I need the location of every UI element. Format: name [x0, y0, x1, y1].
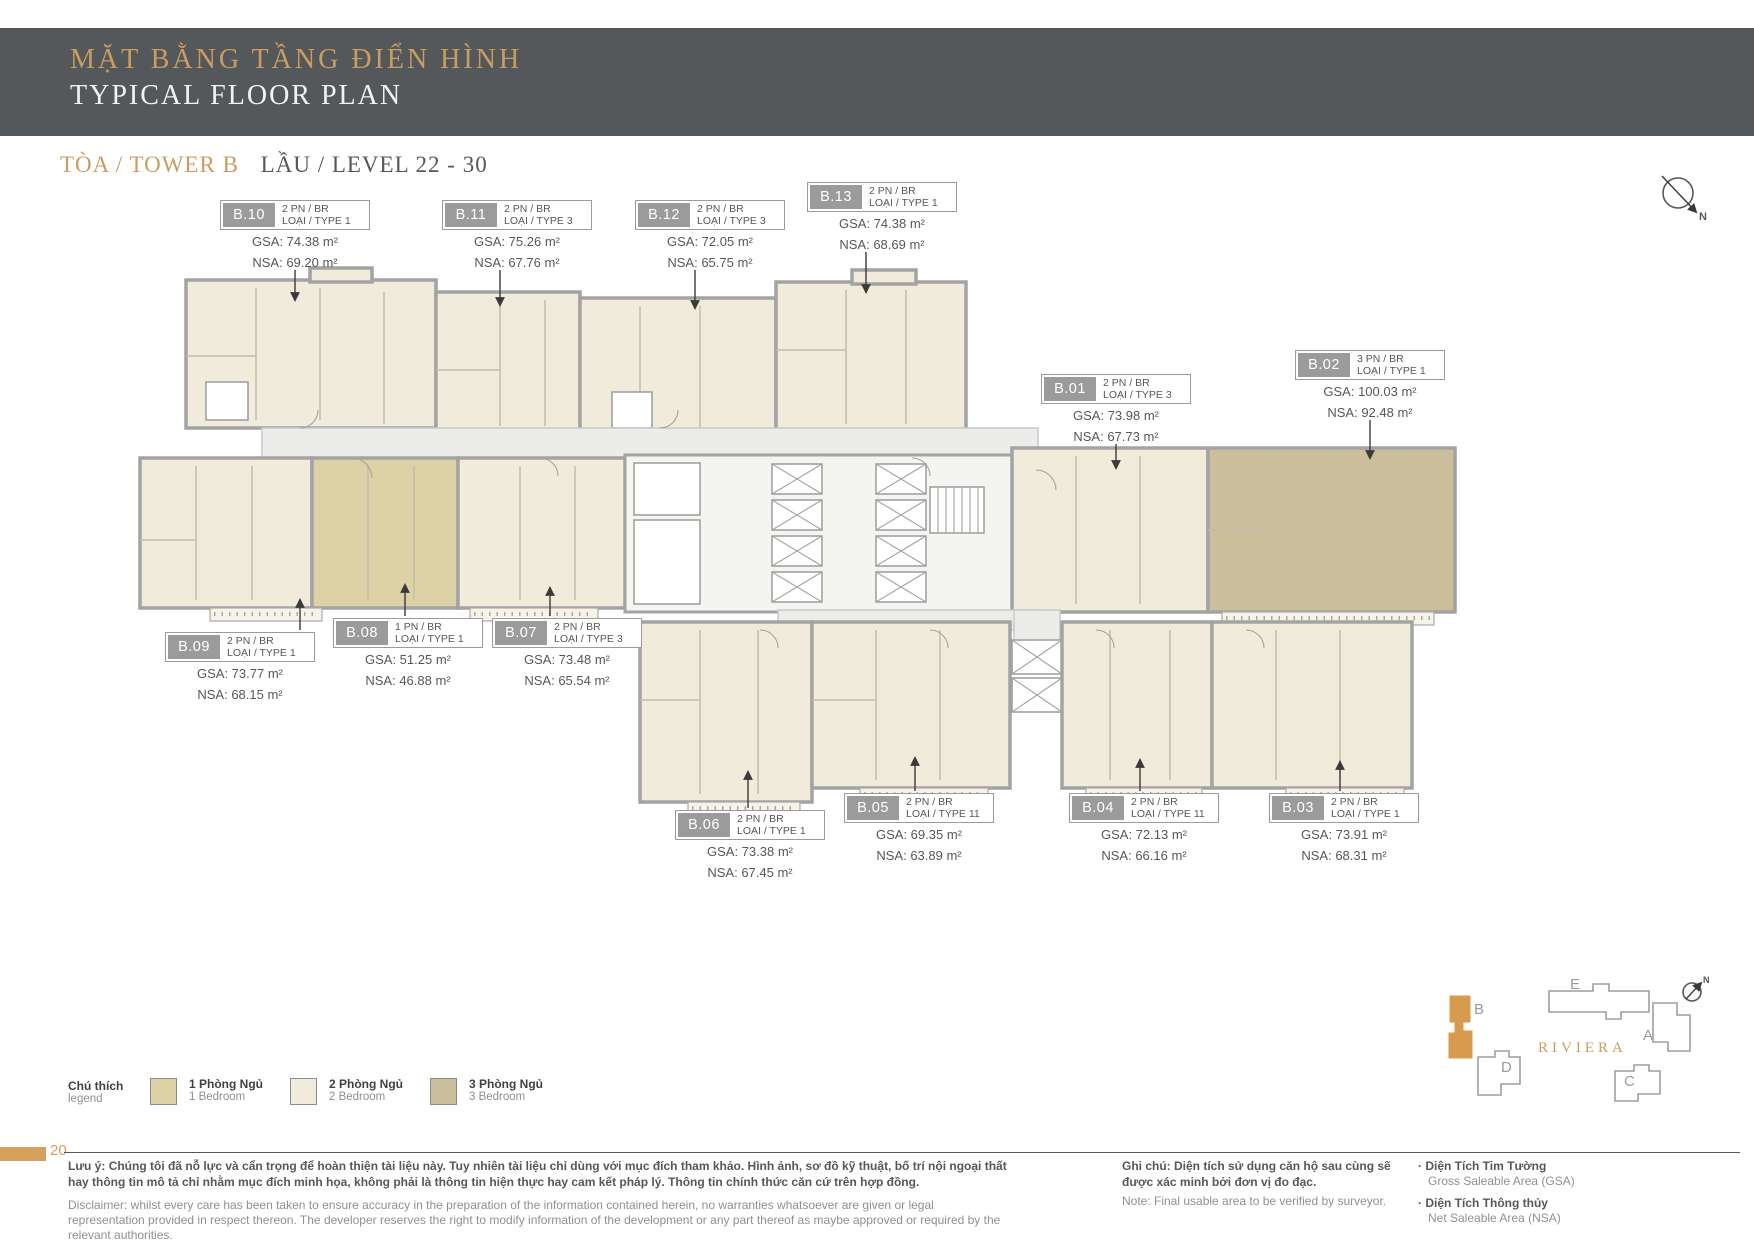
site-map-compass-icon: N	[1683, 975, 1710, 1001]
site-building-b	[1449, 996, 1472, 1058]
unit-gsa: GSA: 72.13 m²	[1064, 825, 1224, 844]
unit-code: B.04	[1072, 796, 1124, 820]
unit-label-b11: B.11 2 PN / BR LOẠI / TYPE 3 GSA: 75.26 …	[437, 200, 597, 272]
nsa-term: · Diện Tích Thông thủy Net Saleable Area…	[1418, 1195, 1738, 1226]
site-building-d	[1478, 1051, 1520, 1095]
unit-label-b12: B.12 2 PN / BR LOẠI / TYPE 3 GSA: 72.05 …	[630, 200, 790, 272]
unit-label-b13: B.13 2 PN / BR LOẠI / TYPE 1 GSA: 74.38 …	[802, 182, 962, 254]
unit-code: B.13	[810, 185, 862, 209]
unit-type: 2 PN / BR LOẠI / TYPE 11	[1124, 796, 1216, 820]
unit-gsa: GSA: 72.05 m²	[630, 232, 790, 251]
unit-nsa: NSA: 68.69 m²	[802, 235, 962, 254]
site-north-label: N	[1703, 975, 1710, 985]
disclaimer-vn: Lưu ý: Chúng tôi đã nỗ lực và cẩn trọng …	[68, 1158, 1008, 1190]
site-building-a	[1653, 1003, 1690, 1051]
note-vn: Ghi chú: Diện tích sử dụng căn hộ sau cù…	[1122, 1158, 1410, 1190]
unit-tag: B.07 2 PN / BR LOẠI / TYPE 3	[492, 618, 642, 648]
legend-item-2br: 2 Phòng Ngủ 2 Bedroom	[290, 1078, 403, 1105]
unit-nsa: NSA: 68.31 m²	[1264, 846, 1424, 865]
gsa-term: · Diện Tích Tim Tường Gross Saleable Are…	[1418, 1158, 1738, 1189]
unit-gsa: GSA: 74.38 m²	[802, 214, 962, 233]
unit-gsa: GSA: 73.98 m²	[1036, 406, 1196, 425]
unit-type: 3 PN / BR LOẠI / TYPE 1	[1350, 353, 1442, 377]
unit-nsa: NSA: 67.45 m²	[670, 863, 830, 882]
unit-nsa: NSA: 68.15 m²	[160, 685, 320, 704]
unit-label-b07: B.07 2 PN / BR LOẠI / TYPE 3 GSA: 73.48 …	[487, 618, 647, 690]
unit-gsa: GSA: 100.03 m²	[1290, 382, 1450, 401]
unit-gsa: GSA: 69.35 m²	[839, 825, 999, 844]
unit-code: B.03	[1272, 796, 1324, 820]
corridor	[1014, 610, 1060, 644]
unit-code: B.09	[168, 635, 220, 659]
legend-swatch-1br	[150, 1078, 177, 1105]
unit-type: 1 PN / BR LOẠI / TYPE 1	[388, 621, 480, 645]
page-tab	[0, 1147, 46, 1161]
unit-tag: B.10 2 PN / BR LOẠI / TYPE 1	[220, 200, 370, 230]
unit-type: 2 PN / BR LOẠI / TYPE 1	[1324, 796, 1416, 820]
disclaimer: Lưu ý: Chúng tôi đã nỗ lực và cẩn trọng …	[68, 1158, 1008, 1241]
unit-code: B.08	[336, 621, 388, 645]
unit-tag: B.11 2 PN / BR LOẠI / TYPE 3	[442, 200, 592, 230]
unit-code: B.12	[638, 203, 690, 227]
project-name: RIVIERA	[1538, 1040, 1627, 1056]
note-en: Note: Final usable area to be verified b…	[1122, 1194, 1410, 1209]
unit-nsa: NSA: 67.73 m²	[1036, 427, 1196, 446]
area-terms: · Diện Tích Tim Tường Gross Saleable Are…	[1418, 1158, 1738, 1232]
unit-label-b06: B.06 2 PN / BR LOẠI / TYPE 1 GSA: 73.38 …	[670, 810, 830, 882]
site-map: B E A D C RIVIERA N	[1449, 975, 1710, 1101]
staircase	[930, 487, 984, 533]
unit-nsa: NSA: 46.88 m²	[328, 671, 488, 690]
unit-gsa: GSA: 74.38 m²	[215, 232, 375, 251]
unit-nsa: NSA: 65.75 m²	[630, 253, 790, 272]
unit-tag: B.12 2 PN / BR LOẠI / TYPE 3	[635, 200, 785, 230]
legend-item-3br: 3 Phòng Ngủ 3 Bedroom	[430, 1078, 543, 1105]
unit-type: 2 PN / BR LOẠI / TYPE 3	[690, 203, 782, 227]
unit-code: B.11	[445, 203, 497, 227]
unit-b06-area	[640, 622, 812, 802]
unit-code: B.07	[495, 621, 547, 645]
unit-type: 2 PN / BR LOẠI / TYPE 1	[275, 203, 367, 227]
unit-b13-area	[776, 282, 966, 432]
unit-type: 2 PN / BR LOẠI / TYPE 11	[899, 796, 991, 820]
unit-nsa: NSA: 69.20 m²	[215, 253, 375, 272]
unit-b09-area	[140, 458, 312, 608]
unit-gsa: GSA: 73.48 m²	[487, 650, 647, 669]
unit-gsa: GSA: 75.26 m²	[437, 232, 597, 251]
unit-label-b03: B.03 2 PN / BR LOẠI / TYPE 1 GSA: 73.91 …	[1264, 793, 1424, 865]
unit-label-b04: B.04 2 PN / BR LOẠI / TYPE 11 GSA: 72.13…	[1064, 793, 1224, 865]
unit-gsa: GSA: 73.77 m²	[160, 664, 320, 683]
unit-nsa: NSA: 92.48 m²	[1290, 403, 1450, 422]
footer-divider	[64, 1152, 1740, 1153]
mid-left-wing	[140, 458, 625, 621]
site-label-c: C	[1624, 1073, 1635, 1090]
unit-tag: B.13 2 PN / BR LOẠI / TYPE 1	[807, 182, 957, 212]
unit-code: B.01	[1044, 377, 1096, 401]
unit-tag: B.02 3 PN / BR LOẠI / TYPE 1	[1295, 350, 1445, 380]
unit-b03-area	[1212, 622, 1412, 788]
unit-code: B.06	[678, 813, 730, 837]
site-building-c	[1615, 1065, 1660, 1101]
unit-label-b08: B.08 1 PN / BR LOẠI / TYPE 1 GSA: 51.25 …	[328, 618, 488, 690]
unit-b04-area	[1062, 622, 1212, 788]
unit-tag: B.03 2 PN / BR LOẠI / TYPE 1	[1269, 793, 1419, 823]
unit-type: 2 PN / BR LOẠI / TYPE 3	[1096, 377, 1188, 401]
north-compass-icon: N	[1662, 176, 1707, 223]
surveyor-note: Ghi chú: Diện tích sử dụng căn hộ sau cù…	[1122, 1158, 1410, 1209]
unit-type: 2 PN / BR LOẠI / TYPE 3	[547, 621, 639, 645]
legend-item-1br: 1 Phòng Ngủ 1 Bedroom	[150, 1078, 263, 1105]
site-label-e: E	[1570, 976, 1580, 993]
unit-type: 2 PN / BR LOẠI / TYPE 1	[220, 635, 312, 659]
unit-gsa: GSA: 51.25 m²	[328, 650, 488, 669]
unit-tag: B.01 2 PN / BR LOẠI / TYPE 3	[1041, 374, 1191, 404]
site-label-b: B	[1474, 1001, 1484, 1018]
unit-label-b10: B.10 2 PN / BR LOẠI / TYPE 1 GSA: 74.38 …	[215, 200, 375, 272]
unit-code: B.02	[1298, 353, 1350, 377]
unit-b01-area	[1012, 448, 1208, 612]
brochure-page: MẶT BẰNG TẦNG ĐIỂN HÌNH TYPICAL FLOOR PL…	[0, 0, 1754, 1241]
unit-tag: B.09 2 PN / BR LOẠI / TYPE 1	[165, 632, 315, 662]
site-label-d: D	[1501, 1059, 1512, 1076]
right-wing	[1012, 448, 1455, 625]
unit-tag: B.06 2 PN / BR LOẠI / TYPE 1	[675, 810, 825, 840]
unit-nsa: NSA: 67.76 m²	[437, 253, 597, 272]
legend-swatch-2br	[290, 1078, 317, 1105]
unit-gsa: GSA: 73.38 m²	[670, 842, 830, 861]
unit-b11-area	[436, 292, 580, 432]
unit-type: 2 PN / BR LOẠI / TYPE 3	[497, 203, 589, 227]
page-number: 20	[50, 1142, 67, 1159]
unit-b07-area	[458, 458, 625, 608]
unit-code: B.10	[223, 203, 275, 227]
unit-gsa: GSA: 73.91 m²	[1264, 825, 1424, 844]
unit-type: 2 PN / BR LOẠI / TYPE 1	[730, 813, 822, 837]
unit-tag: B.04 2 PN / BR LOẠI / TYPE 11	[1069, 793, 1219, 823]
unit-tag: B.08 1 PN / BR LOẠI / TYPE 1	[333, 618, 483, 648]
unit-code: B.05	[847, 796, 899, 820]
top-wing	[186, 268, 966, 434]
unit-nsa: NSA: 65.54 m²	[487, 671, 647, 690]
unit-nsa: NSA: 66.16 m²	[1064, 846, 1224, 865]
legend-swatch-3br	[430, 1078, 457, 1105]
unit-b05-area	[812, 622, 1010, 788]
unit-b08-area	[312, 458, 458, 608]
unit-type: 2 PN / BR LOẠI / TYPE 1	[862, 185, 954, 209]
central-core	[625, 455, 1012, 612]
unit-nsa: NSA: 63.89 m²	[839, 846, 999, 865]
unit-tag: B.05 2 PN / BR LOẠI / TYPE 11	[844, 793, 994, 823]
unit-label-b05: B.05 2 PN / BR LOẠI / TYPE 11 GSA: 69.35…	[839, 793, 999, 865]
north-label: N	[1699, 211, 1707, 223]
bottom-wing	[640, 622, 1412, 814]
unit-label-b01: B.01 2 PN / BR LOẠI / TYPE 3 GSA: 73.98 …	[1036, 374, 1196, 446]
disclaimer-en: Disclaimer: whilst every care has been t…	[68, 1198, 1008, 1241]
unit-label-b09: B.09 2 PN / BR LOẠI / TYPE 1 GSA: 73.77 …	[160, 632, 320, 704]
site-building-e	[1549, 984, 1649, 1019]
legend-title: Chú thích legend	[68, 1080, 123, 1106]
site-label-a: A	[1643, 1027, 1653, 1044]
unit-label-b02: B.02 3 PN / BR LOẠI / TYPE 1 GSA: 100.03…	[1290, 350, 1450, 422]
